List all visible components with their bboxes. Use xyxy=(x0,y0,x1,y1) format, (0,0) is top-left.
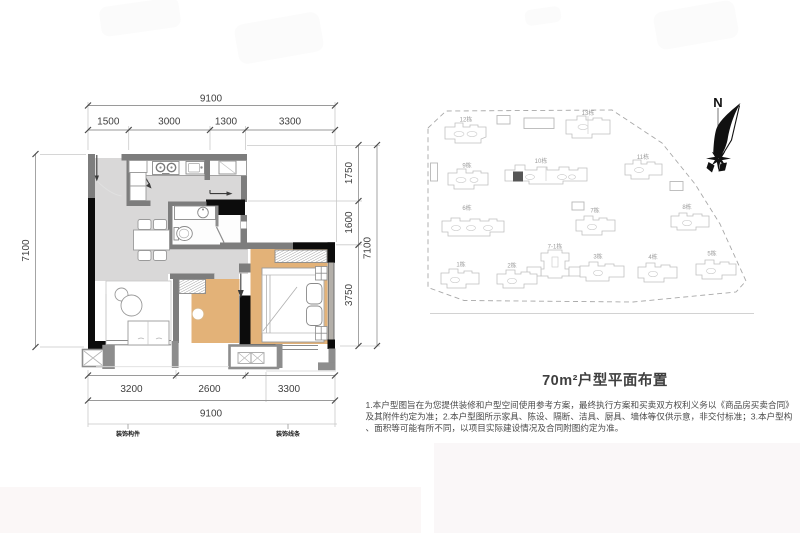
svg-text:3300: 3300 xyxy=(278,384,301,395)
svg-text:13栋: 13栋 xyxy=(582,109,595,117)
svg-text:7-1栋: 7-1栋 xyxy=(548,243,563,251)
svg-text:9栋: 9栋 xyxy=(462,162,471,170)
svg-text:、面积等可能有所不同，以项目实际建设情况及合同附图约定为准。: 、面积等可能有所不同，以项目实际建设情况及合同附图约定为准。 xyxy=(366,422,624,433)
svg-text:8栋: 8栋 xyxy=(682,203,691,211)
svg-text:10栋: 10栋 xyxy=(535,157,548,165)
svg-text:3300: 3300 xyxy=(279,117,302,128)
svg-text:70m²户型平面布置: 70m²户型平面布置 xyxy=(542,371,668,389)
svg-text:装饰构件: 装饰构件 xyxy=(115,430,140,438)
svg-text:11栋: 11栋 xyxy=(637,153,649,161)
svg-text:装饰线条: 装饰线条 xyxy=(275,430,301,438)
svg-text:4栋: 4栋 xyxy=(648,253,657,261)
svg-text:及其附件约定为准；2.本户型图所示家具、陈设、隔断、洁具、厨: 及其附件约定为准；2.本户型图所示家具、陈设、隔断、洁具、厨具、墙体等仅供示意，… xyxy=(366,411,793,422)
svg-text:1500: 1500 xyxy=(97,117,120,128)
svg-text:7100: 7100 xyxy=(21,239,32,262)
svg-text:7100: 7100 xyxy=(363,236,374,259)
svg-text:1栋: 1栋 xyxy=(456,261,465,269)
svg-text:3000: 3000 xyxy=(158,117,181,128)
svg-text:1600: 1600 xyxy=(344,211,355,234)
svg-text:N: N xyxy=(713,95,722,110)
svg-text:9100: 9100 xyxy=(200,94,223,105)
svg-text:7栋: 7栋 xyxy=(590,207,599,215)
svg-text:2600: 2600 xyxy=(198,384,221,395)
svg-text:3750: 3750 xyxy=(344,283,355,306)
svg-text:3栋: 3栋 xyxy=(593,253,602,261)
svg-text:1.本户型图旨在为您提供装修和户型空间使用参考方案，最终执行: 1.本户型图旨在为您提供装修和户型空间使用参考方案，最终执行方案和买卖双方权利义… xyxy=(366,399,794,410)
svg-text:1300: 1300 xyxy=(215,117,238,128)
svg-text:9100: 9100 xyxy=(200,409,223,420)
svg-text:6栋: 6栋 xyxy=(462,204,471,212)
svg-text:5栋: 5栋 xyxy=(707,250,716,258)
svg-text:3200: 3200 xyxy=(120,384,143,395)
svg-text:12栋: 12栋 xyxy=(460,116,473,124)
svg-text:1750: 1750 xyxy=(344,161,355,184)
svg-text:2栋: 2栋 xyxy=(507,262,516,270)
